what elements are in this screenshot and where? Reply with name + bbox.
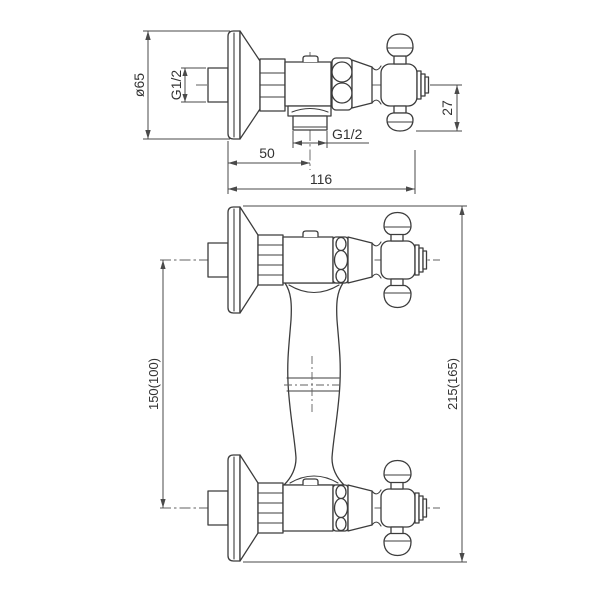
dim-label-wall-thread: G1/2 bbox=[168, 70, 184, 101]
dim-label-outlet-offset: 50 bbox=[259, 145, 275, 161]
handle-neck-bottom bbox=[372, 100, 381, 104]
dim-label-valve-center-distance: 150(100) bbox=[146, 358, 161, 410]
technical-drawing: ø65 G1/2 G1/2 50 bbox=[0, 0, 600, 600]
escutcheon-cone bbox=[240, 31, 260, 139]
valve-body bbox=[285, 62, 331, 106]
drawing-canvas: ø65 G1/2 G1/2 50 bbox=[0, 0, 600, 600]
cartridge-cap bbox=[303, 56, 318, 62]
mixer-column bbox=[284, 283, 344, 485]
handle-hub bbox=[381, 64, 417, 106]
wall-nipple bbox=[208, 68, 228, 102]
dimension-valve-center-distance: 150(100) bbox=[146, 260, 166, 508]
handle-base-cone bbox=[352, 60, 372, 108]
handle-knob-bottom bbox=[387, 106, 413, 131]
dim-label-overall-height: 215(165) bbox=[445, 358, 460, 410]
dim-label-flange-diameter: ø65 bbox=[131, 73, 147, 97]
bottom-outlet bbox=[288, 106, 331, 130]
side-view: ø65 G1/2 G1/2 50 bbox=[131, 31, 462, 194]
handle-neck-top bbox=[372, 66, 381, 70]
dim-label-handle-height: 27 bbox=[439, 100, 455, 116]
dim-label-outlet-thread: G1/2 bbox=[332, 126, 363, 142]
front-view: 150(100) 215(165) bbox=[146, 206, 467, 562]
dim-label-total-depth: 116 bbox=[310, 171, 333, 187]
ring-section bbox=[332, 58, 352, 110]
dimension-outlet-offset: 50 bbox=[228, 141, 310, 194]
handle-knob-top bbox=[387, 34, 413, 64]
dimension-total-depth: 116 bbox=[228, 150, 415, 194]
handle-cap bbox=[417, 71, 429, 99]
mounting-nut bbox=[260, 59, 285, 111]
